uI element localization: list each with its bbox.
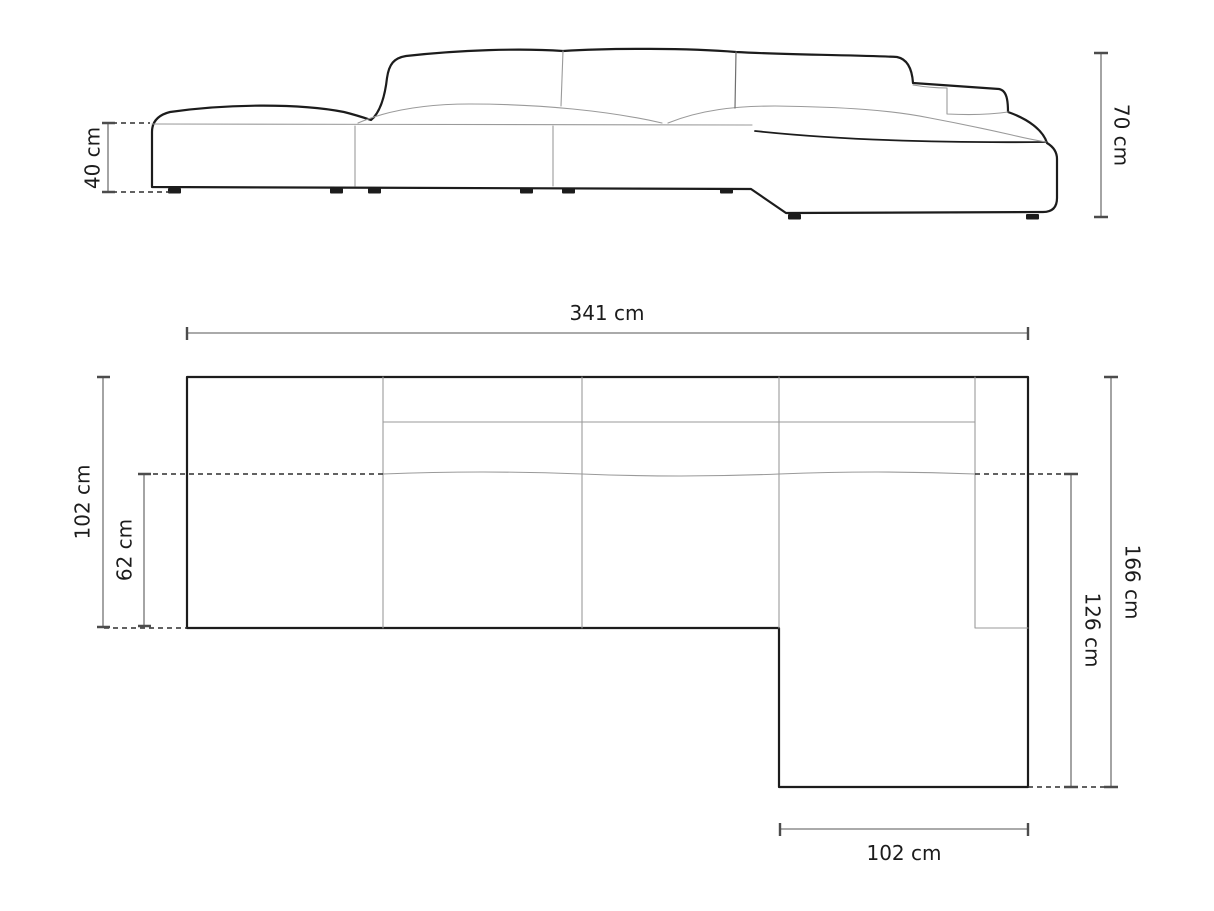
side-view-silhouette bbox=[152, 49, 1057, 213]
top-view-chaise-backrest-strip bbox=[975, 377, 1028, 628]
top-view-outline bbox=[187, 377, 1028, 787]
dimension-total-width: 341 cm bbox=[187, 301, 1028, 340]
diagram-svg: 40 cm 70 cm 341 cm 102 cm bbox=[0, 0, 1214, 911]
top-view-module-dividers bbox=[383, 377, 779, 628]
dimension-chaise-width: 102 cm bbox=[780, 823, 1028, 865]
sofa-leg bbox=[788, 214, 801, 220]
sofa-leg bbox=[720, 188, 733, 194]
dim-label-chaise-depth-outer: 166 cm bbox=[1121, 544, 1145, 619]
sofa-leg bbox=[562, 188, 575, 194]
dim-label-seat-depth: 62 cm bbox=[113, 519, 137, 581]
sofa-leg bbox=[1026, 214, 1039, 220]
top-view-seat-front-line bbox=[383, 472, 975, 476]
side-view-legs bbox=[168, 188, 1039, 220]
dimension-total-depth: 102 cm bbox=[71, 377, 111, 627]
dim-label-total-height: 70 cm bbox=[1110, 104, 1134, 166]
side-view-back-seam-2 bbox=[735, 52, 736, 108]
dimension-seat-height: 40 cm bbox=[81, 123, 171, 192]
sofa-leg bbox=[368, 188, 381, 194]
dim-label-seat-height: 40 cm bbox=[81, 127, 105, 189]
sofa-leg bbox=[520, 188, 533, 194]
side-view-seat-cushion-right bbox=[668, 106, 1046, 142]
sofa-leg bbox=[330, 188, 343, 194]
dim-label-total-width: 341 cm bbox=[569, 301, 644, 325]
sofa-top-view-drawing: 341 cm 102 cm 62 cm 126 cm 166 cm bbox=[71, 301, 1145, 865]
sofa-side-view-drawing: 40 cm 70 cm bbox=[81, 49, 1134, 220]
dimension-chaise-depth-inner: 126 cm bbox=[1064, 474, 1105, 787]
top-view-dashed-lines bbox=[104, 474, 1111, 787]
sofa-dimension-diagram: 40 cm 70 cm 341 cm 102 cm bbox=[0, 0, 1214, 911]
dim-label-total-depth: 102 cm bbox=[71, 464, 95, 539]
dimension-chaise-depth-outer: 166 cm bbox=[1104, 377, 1145, 787]
extension-dashed-line bbox=[112, 123, 170, 192]
dim-label-chaise-width: 102 cm bbox=[866, 841, 941, 865]
side-view-seat-cushion-left bbox=[358, 104, 662, 123]
dimension-seat-depth: 62 cm bbox=[113, 474, 152, 626]
dimension-total-height: 70 cm bbox=[1094, 53, 1134, 217]
dim-label-chaise-depth-inner: 126 cm bbox=[1081, 592, 1105, 667]
side-view-back-seam-1 bbox=[561, 51, 563, 106]
side-view-deck-line bbox=[152, 124, 752, 125]
